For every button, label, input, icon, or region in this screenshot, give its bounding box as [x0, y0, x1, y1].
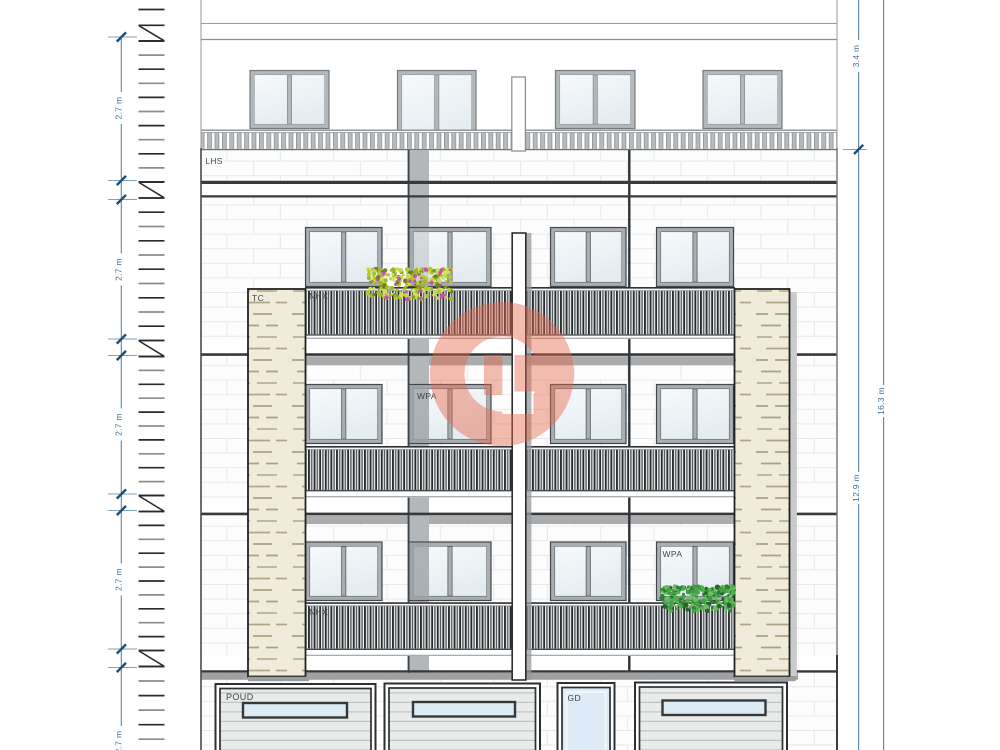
svg-text:16.3 m: 16.3 m — [876, 387, 886, 415]
svg-text:LHS: LHS — [206, 156, 223, 166]
svg-text:NHX: NHX — [309, 291, 328, 301]
svg-text:3.4 m: 3.4 m — [851, 45, 861, 68]
svg-text:GD: GD — [568, 693, 582, 703]
svg-text:2.7 m: 2.7 m — [114, 97, 124, 120]
svg-text:POUD: POUD — [226, 692, 254, 702]
svg-text:2.7 m: 2.7 m — [114, 568, 124, 591]
svg-text:NHX: NHX — [309, 607, 328, 617]
svg-text:TC: TC — [252, 293, 264, 303]
svg-text:2.7 m: 2.7 m — [114, 731, 124, 750]
svg-text:12.9 m: 12.9 m — [851, 474, 861, 502]
svg-text:2.7 m: 2.7 m — [114, 258, 124, 281]
svg-text:WPA: WPA — [663, 549, 683, 559]
svg-text:2.7 m: 2.7 m — [114, 413, 124, 436]
